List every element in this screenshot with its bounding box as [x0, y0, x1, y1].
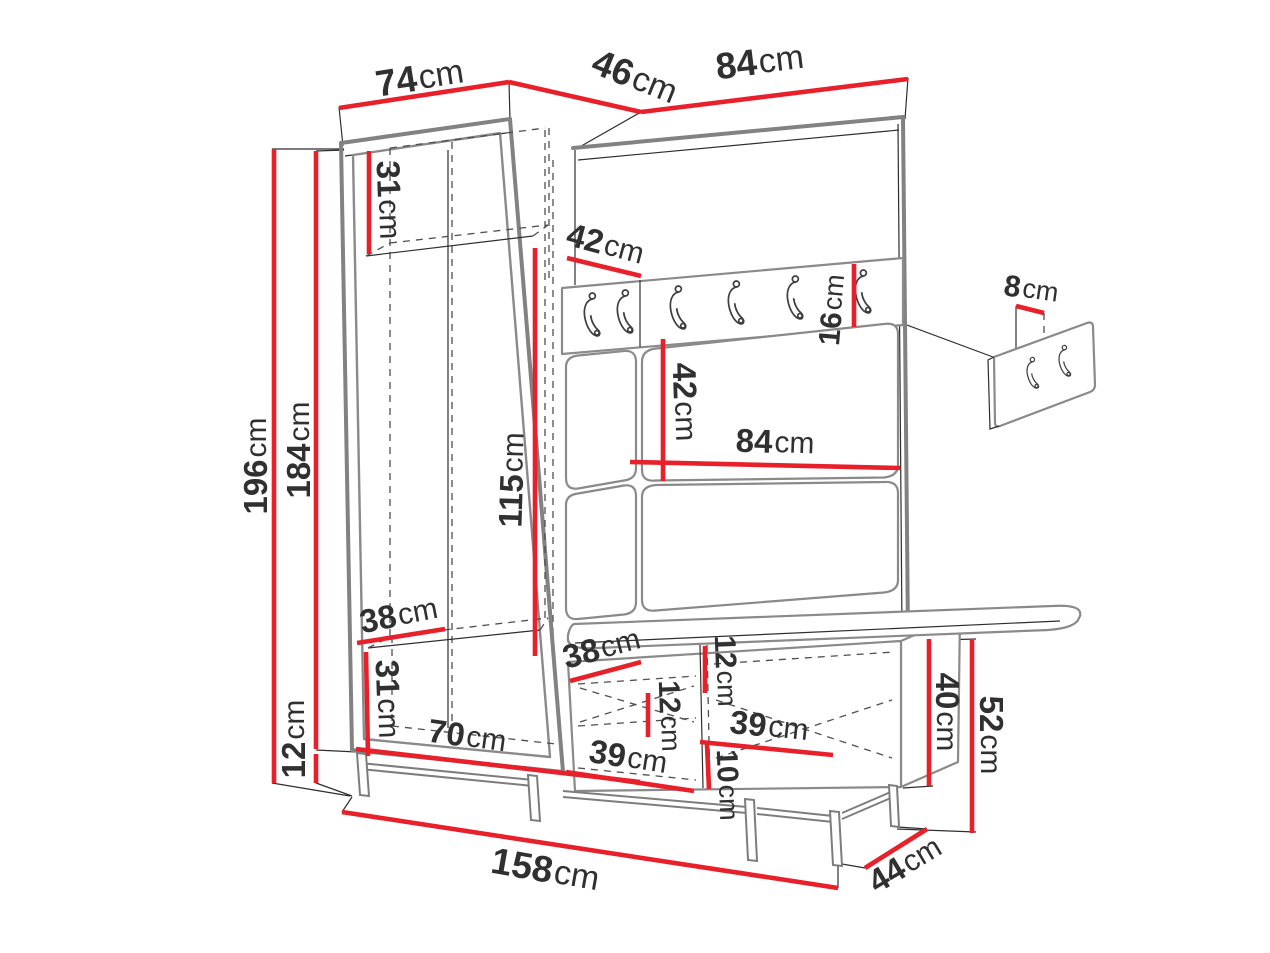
dimension-label: 70cm	[426, 711, 509, 759]
dimension-label: 42cm	[666, 362, 706, 442]
corner-section-lower	[566, 485, 636, 619]
dimension-label: 8cm	[1002, 269, 1061, 309]
dimension-line	[366, 652, 368, 756]
frame-bar	[842, 791, 893, 813]
wardrobe-top-edge	[341, 119, 510, 143]
dimension-wall-panel-hook-spacing: 8cm	[1002, 269, 1061, 313]
dimension-label: 12cm	[275, 700, 312, 779]
dimension-drawing-page: 196cm 184cm 12cm 74cm 46cm 84cm 31cm	[0, 0, 1270, 953]
furniture-leg	[528, 775, 540, 821]
dimension-line	[641, 79, 908, 112]
extension-line	[342, 797, 352, 812]
furniture-leg	[745, 799, 757, 861]
hidden-shelf-back-edge	[390, 225, 548, 243]
dimension-bench-total-height: 52cm	[972, 640, 1010, 833]
corner-section-upper	[566, 351, 636, 489]
dimension-bench-depth: 44cm	[861, 827, 948, 899]
dimension-label: 31cm	[370, 160, 410, 240]
dimension-line	[707, 744, 709, 789]
wardrobe-left-edge	[341, 143, 352, 750]
hidden-shelf-side-edge	[540, 618, 548, 630]
panel-right-edge	[903, 117, 908, 634]
dimension-label: 31cm	[369, 659, 409, 739]
bench-cushion	[568, 606, 1080, 649]
main-section-lower	[642, 482, 898, 611]
frame-bar	[842, 797, 893, 819]
dimension-wardrobe-top-shelf-height: 31cm	[369, 151, 410, 254]
extension-line	[897, 829, 976, 832]
dimension-top-width-wardrobe: 74cm	[339, 50, 509, 108]
panel-top-edge	[573, 117, 903, 148]
extension-line	[272, 783, 350, 796]
hallway-furniture-diagram: 196cm 184cm 12cm 74cm 46cm 84cm 31cm	[0, 0, 1270, 953]
dimension-label: 196cm	[237, 417, 274, 514]
dimension-label: 84cm	[735, 421, 815, 461]
dimension-label: 84cm	[713, 36, 806, 87]
dimension-label: 42cm	[563, 215, 649, 271]
dimension-wardrobe-side-depth: 42cm	[563, 215, 649, 276]
dimension-top-width-corner: 46cm	[509, 41, 684, 112]
extension-line	[903, 786, 933, 788]
wall-hook-panel-detail	[988, 323, 1095, 430]
panel-sections	[566, 324, 898, 619]
dimension-label: 40cm	[929, 673, 966, 752]
furniture-leg	[830, 811, 842, 866]
detail-panel-face	[994, 323, 1095, 427]
dimension-total-width: 158cm	[342, 812, 838, 899]
dimension-label: 12cm	[652, 680, 687, 752]
dimension-total-height: 196cm	[237, 149, 274, 783]
dimension-label: 52cm	[973, 696, 1010, 775]
extension-line	[316, 783, 352, 796]
furniture-leg	[889, 785, 899, 827]
extension-line	[905, 78, 908, 119]
furniture-leg	[357, 753, 369, 796]
dimension-wardrobe-bottom-depth: 38cm	[356, 589, 445, 643]
dimension-body-height: 184cm	[280, 151, 317, 749]
dimension-legs-height: 12cm	[275, 700, 316, 783]
dimension-label: 184cm	[280, 401, 317, 498]
dimension-label: 16cm	[813, 273, 852, 347]
dimension-line	[1016, 306, 1044, 313]
dimension-label: 12cm	[708, 635, 743, 707]
extension-line	[339, 107, 343, 146]
dimension-top-width-panel: 84cm	[641, 36, 908, 112]
dimension-label: 10cm	[710, 749, 745, 821]
dimension-label: 115cm	[491, 432, 531, 528]
extension-line	[509, 81, 510, 121]
dimension-label: 44cm	[861, 827, 948, 899]
